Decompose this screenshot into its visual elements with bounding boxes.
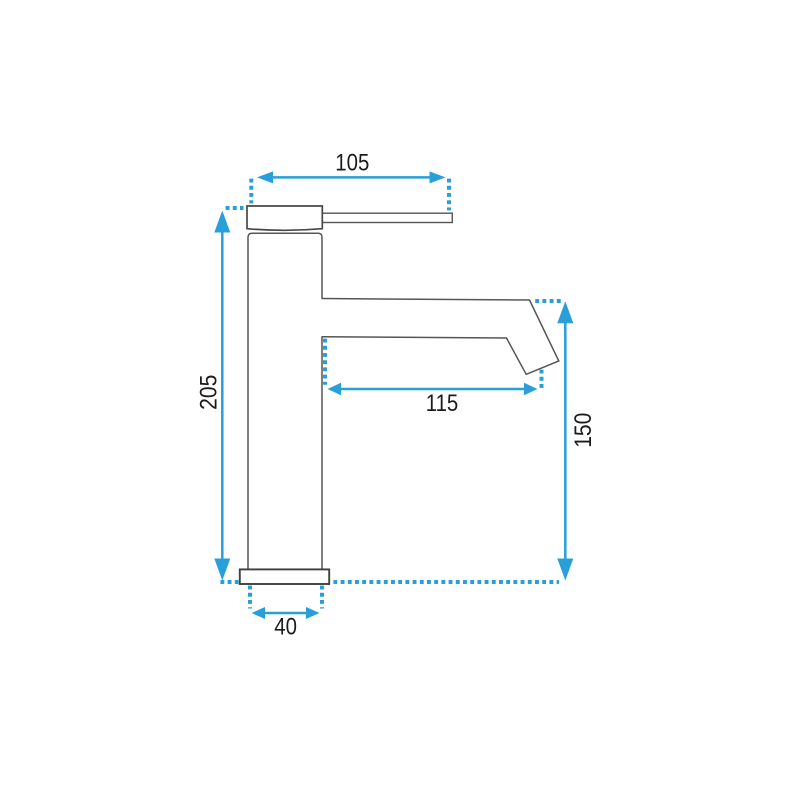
svg-text:40: 40 — [274, 613, 297, 640]
svg-text:150: 150 — [570, 413, 597, 448]
svg-text:115: 115 — [426, 389, 459, 416]
svg-text:205: 205 — [195, 375, 222, 410]
svg-text:105: 105 — [335, 149, 369, 176]
